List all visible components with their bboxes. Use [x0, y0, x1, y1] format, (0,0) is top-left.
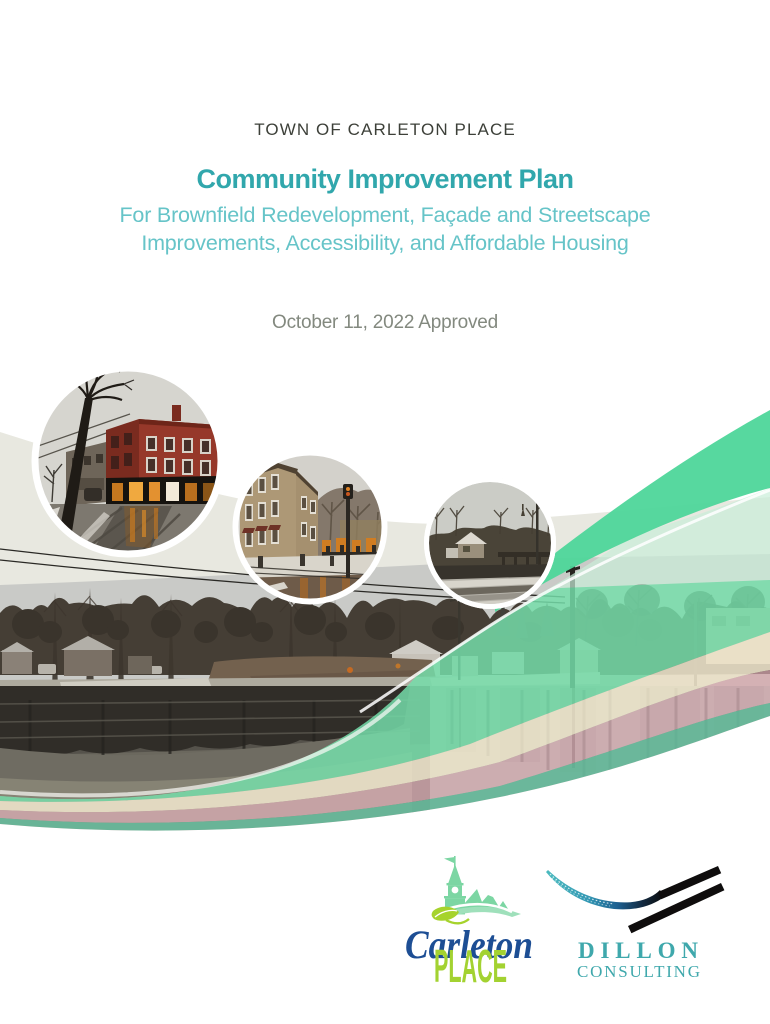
- svg-text:PLACE: PLACE: [434, 940, 507, 992]
- svg-text:CONSULTING: CONSULTING: [577, 962, 700, 981]
